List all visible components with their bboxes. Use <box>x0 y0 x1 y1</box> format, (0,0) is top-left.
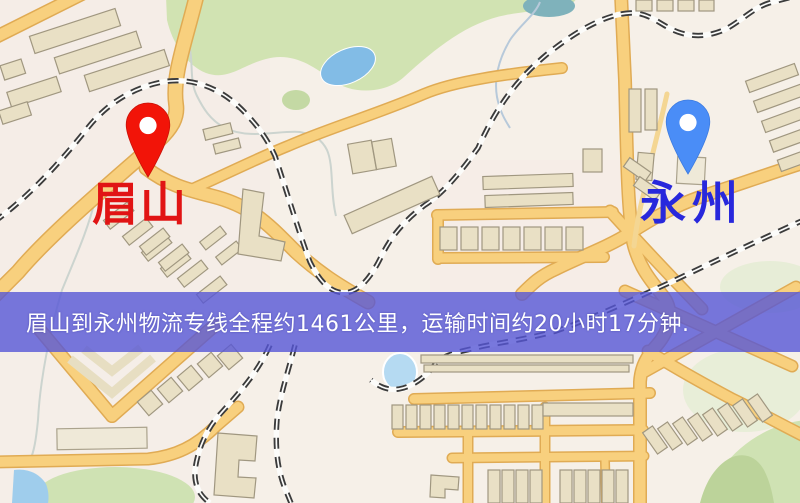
map-canvas[interactable]: 眉山 永州 <box>0 0 800 503</box>
route-info-banner: 眉山到永州物流专线全程约1461公里，运输时间约20小时17分钟. <box>0 292 800 352</box>
origin-label: 眉山 <box>92 177 188 231</box>
map-screenshot: 眉山 永州 眉山到永州物流专线全程约1461公里，运输时间约20小时17分钟. <box>0 0 800 503</box>
route-info-text: 眉山到永州物流专线全程约1461公里，运输时间约20小时17分钟. <box>0 306 689 338</box>
destination-label: 永州 <box>640 176 744 230</box>
